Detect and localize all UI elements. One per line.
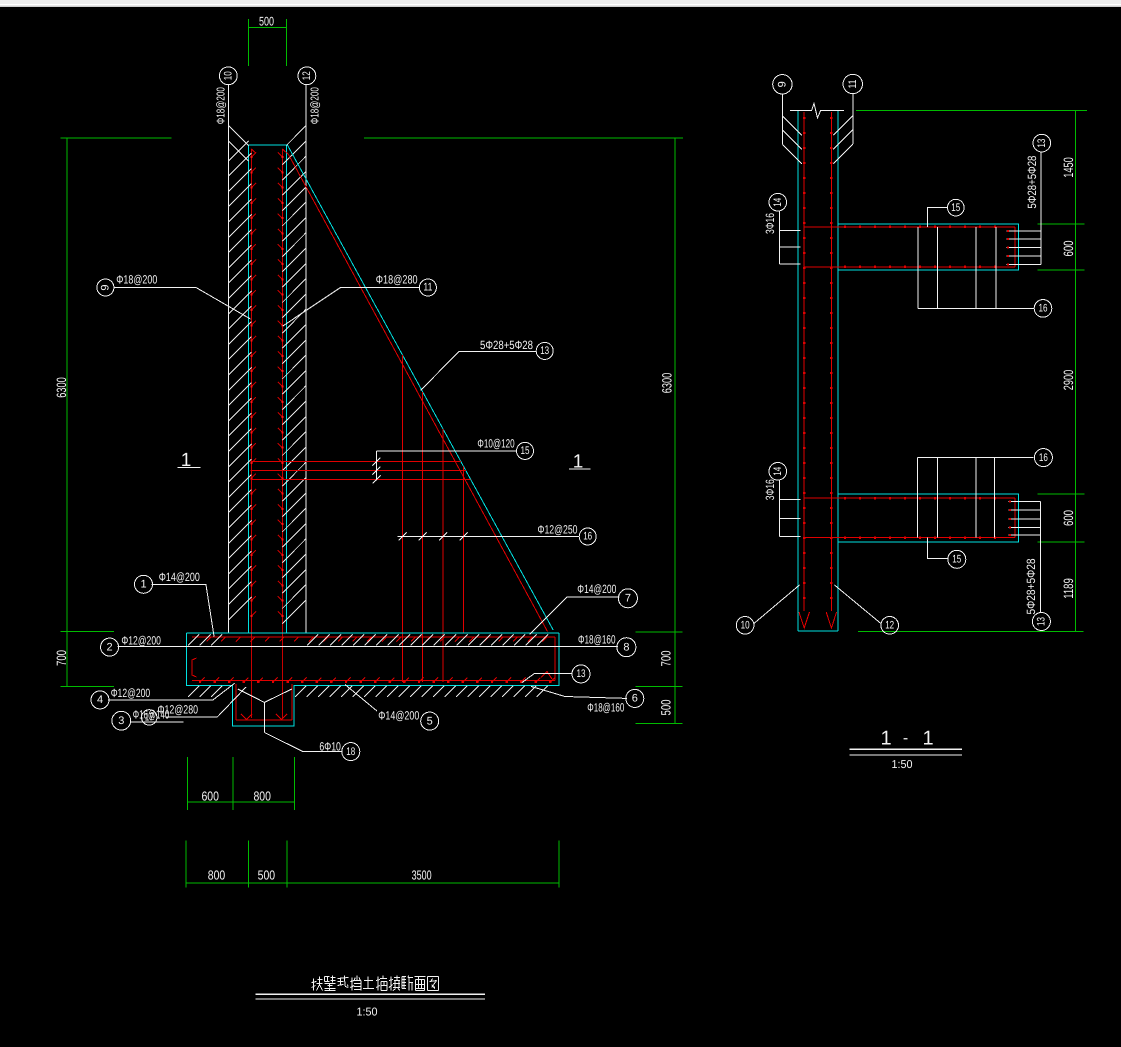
- svg-text:500: 500: [659, 700, 674, 716]
- svg-text:15: 15: [951, 202, 960, 214]
- svg-text:12: 12: [301, 71, 313, 80]
- svg-text:500: 500: [259, 14, 274, 28]
- svg-text:3: 3: [118, 715, 124, 727]
- svg-text:12: 12: [885, 620, 894, 632]
- svg-text:17: 17: [145, 712, 154, 724]
- svg-text:Φ18@160: Φ18@160: [587, 701, 624, 715]
- svg-text:Φ18@160: Φ18@160: [578, 633, 616, 647]
- svg-text:5Φ28+5Φ28: 5Φ28+5Φ28: [1025, 155, 1039, 208]
- svg-text:16: 16: [1039, 452, 1048, 464]
- svg-text:11: 11: [423, 282, 432, 294]
- svg-text:13: 13: [540, 345, 549, 357]
- svg-text:700: 700: [54, 650, 69, 666]
- svg-text:6300: 6300: [660, 373, 675, 394]
- svg-text:9: 9: [777, 81, 789, 87]
- svg-text:13: 13: [1036, 139, 1048, 148]
- svg-text:Φ10@120: Φ10@120: [477, 437, 514, 451]
- svg-text:13: 13: [1036, 617, 1048, 626]
- svg-text:Φ12@200: Φ12@200: [121, 634, 161, 648]
- svg-text:14: 14: [772, 467, 784, 476]
- svg-text:9: 9: [100, 284, 112, 290]
- svg-text:3500: 3500: [412, 868, 432, 883]
- svg-text:Φ18@200: Φ18@200: [309, 87, 321, 124]
- svg-text:Φ18@200: Φ18@200: [215, 87, 227, 124]
- svg-text:14: 14: [772, 198, 784, 207]
- svg-text:Φ12@200: Φ12@200: [111, 686, 151, 700]
- svg-text:10: 10: [741, 620, 750, 632]
- svg-text:Φ14@200: Φ14@200: [159, 570, 200, 584]
- svg-text:6: 6: [632, 693, 638, 705]
- svg-text:5Φ28+5Φ28: 5Φ28+5Φ28: [1024, 558, 1038, 614]
- svg-text:1:50: 1:50: [892, 759, 913, 771]
- svg-text:Φ18@280: Φ18@280: [376, 273, 418, 287]
- svg-text:6300: 6300: [54, 377, 69, 398]
- svg-text:3Φ16: 3Φ16: [763, 213, 777, 234]
- svg-text:Φ14@200: Φ14@200: [577, 582, 616, 596]
- svg-text:2900: 2900: [1061, 370, 1076, 391]
- svg-text:4: 4: [97, 694, 103, 706]
- svg-text:10: 10: [223, 71, 235, 80]
- svg-text:-: -: [903, 730, 908, 747]
- svg-text:6Φ10: 6Φ10: [319, 740, 341, 754]
- svg-text:800: 800: [253, 789, 271, 804]
- svg-text:Φ18@200: Φ18@200: [116, 273, 157, 287]
- svg-text:600: 600: [201, 789, 219, 804]
- svg-text:Φ12@280: Φ12@280: [158, 702, 199, 716]
- svg-text:1:50: 1:50: [357, 1006, 378, 1018]
- svg-text:1: 1: [880, 728, 891, 750]
- svg-text:16: 16: [1039, 303, 1048, 315]
- svg-text:600: 600: [1061, 510, 1076, 526]
- svg-text:18: 18: [346, 746, 355, 758]
- svg-text:16: 16: [583, 531, 592, 543]
- svg-text:Φ14@200: Φ14@200: [378, 709, 419, 723]
- svg-text:7: 7: [625, 593, 631, 605]
- svg-text:1: 1: [922, 728, 933, 750]
- svg-text:15: 15: [952, 554, 961, 566]
- svg-text:1: 1: [140, 579, 146, 591]
- svg-text:700: 700: [659, 651, 674, 667]
- svg-text:5: 5: [427, 715, 433, 727]
- svg-text:13: 13: [577, 668, 586, 680]
- svg-text:800: 800: [208, 868, 226, 883]
- svg-text:500: 500: [258, 868, 276, 883]
- svg-text:15: 15: [521, 445, 530, 457]
- svg-text:2: 2: [107, 641, 113, 653]
- svg-text:8: 8: [623, 641, 629, 653]
- svg-text:Φ12@250: Φ12@250: [538, 523, 578, 537]
- svg-text:1189: 1189: [1061, 578, 1076, 599]
- svg-text:600: 600: [1061, 241, 1076, 257]
- svg-text:11: 11: [847, 80, 859, 89]
- svg-text:5Φ28+5Φ28: 5Φ28+5Φ28: [480, 338, 533, 352]
- svg-text:3Φ16: 3Φ16: [763, 479, 777, 500]
- svg-text:1450: 1450: [1061, 157, 1076, 178]
